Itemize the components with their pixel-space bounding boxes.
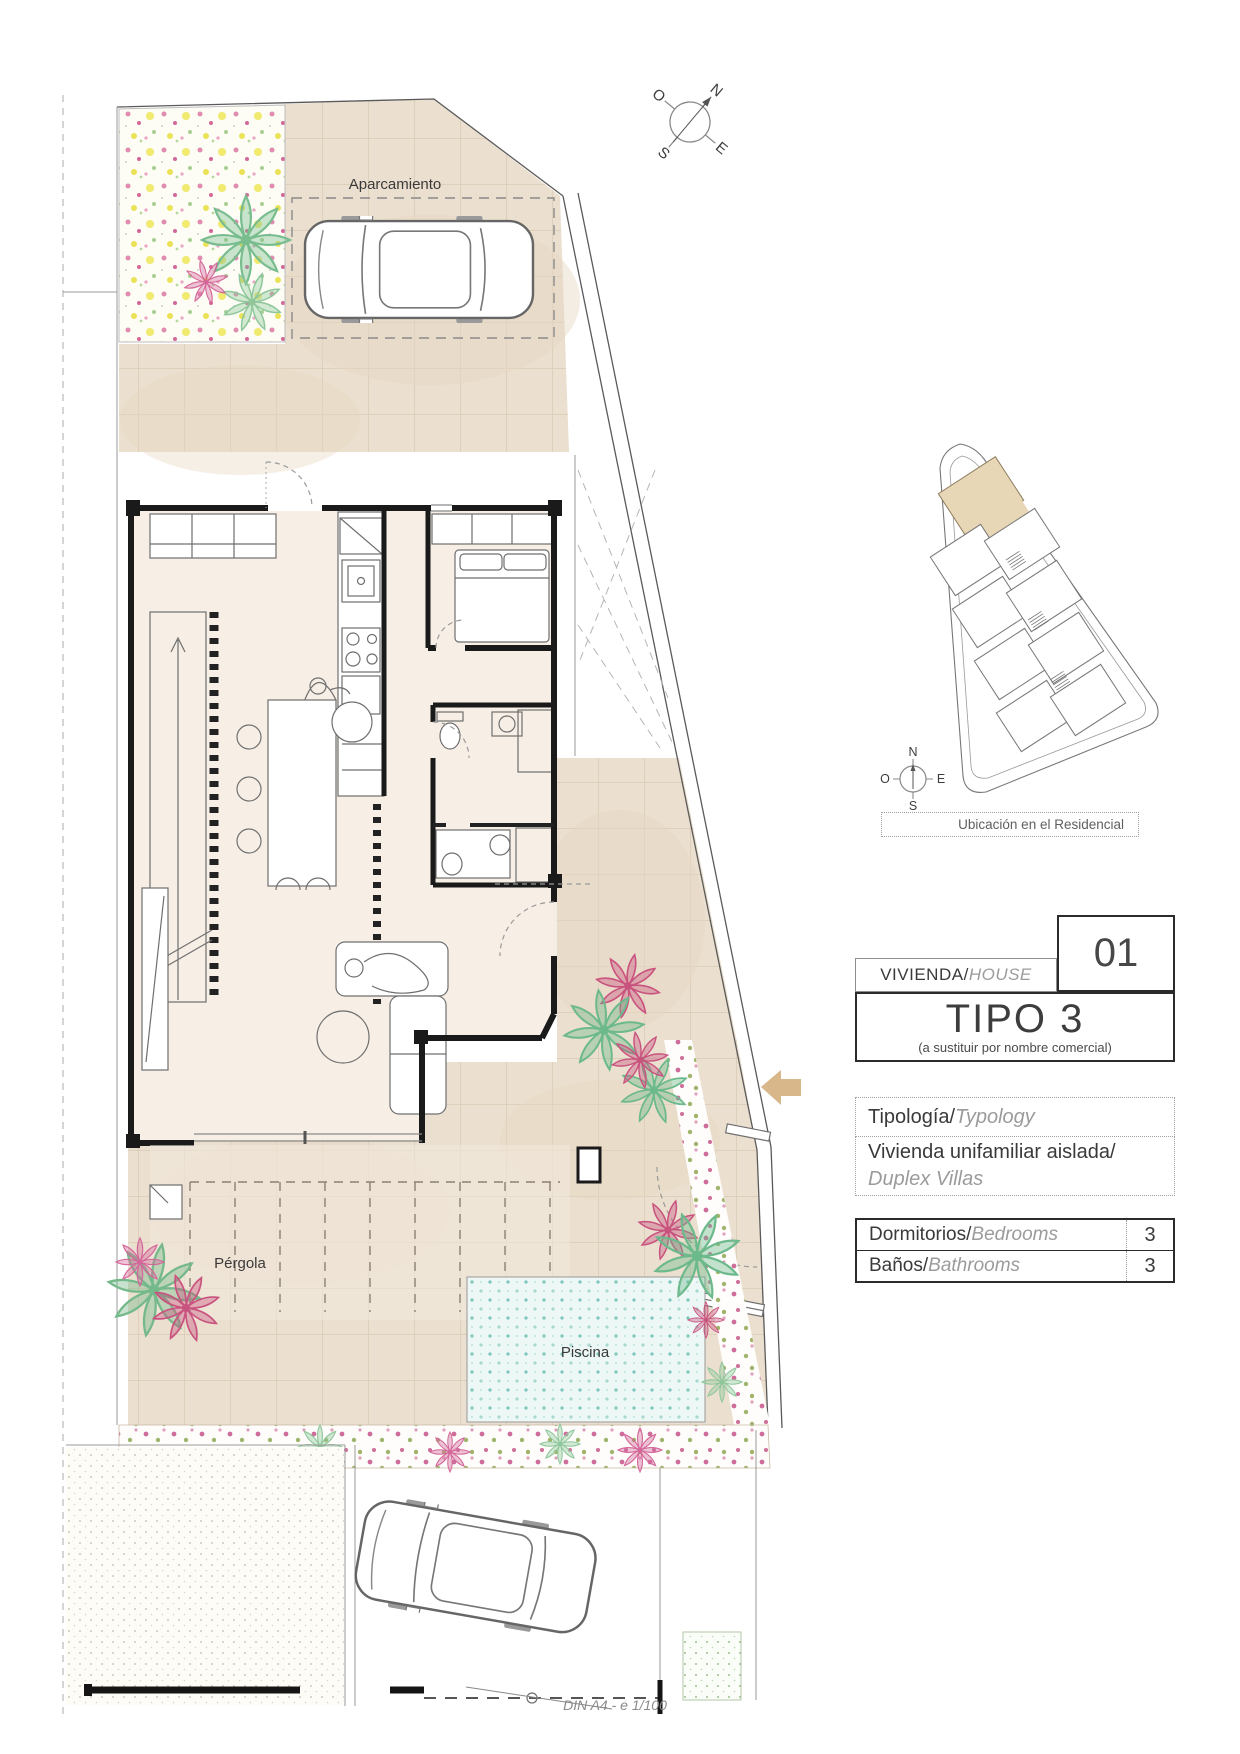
street-car-top-view bbox=[350, 1489, 600, 1644]
typology-label-es: Tipología/ bbox=[868, 1106, 955, 1129]
typology-value-es: Vivienda unifamiliar aislada/ bbox=[868, 1139, 1174, 1166]
floorplan-drawing: N O E S bbox=[0, 0, 1240, 1754]
typology-label-en: Typology bbox=[955, 1106, 1035, 1129]
map-compass-n: N bbox=[908, 745, 917, 759]
map-compass-s: S bbox=[909, 799, 917, 813]
plan-sheet: N O E S bbox=[0, 0, 1240, 1754]
bedrooms-label-es: Dormitorios/ bbox=[869, 1224, 971, 1246]
bedrooms-label: Dormitorios/Bedrooms bbox=[857, 1220, 1126, 1250]
spec-row-bedrooms: Dormitorios/Bedrooms 3 bbox=[857, 1220, 1173, 1250]
bathrooms-value: 3 bbox=[1126, 1251, 1173, 1281]
location-map-compass-icon: N O E S bbox=[880, 745, 945, 813]
bathrooms-label-en: Bathrooms bbox=[928, 1255, 1020, 1277]
house-label-es: VIVIENDA/ bbox=[880, 965, 969, 985]
type-title: TIPO 3 bbox=[946, 999, 1085, 1039]
specs-table: Dormitorios/Bedrooms 3 Baños/Bathrooms 3 bbox=[855, 1218, 1175, 1283]
location-map-caption: Ubicación en el Residencial bbox=[881, 812, 1139, 837]
car-top-view bbox=[305, 213, 533, 326]
street-area bbox=[66, 1430, 756, 1714]
spec-row-bathrooms: Baños/Bathrooms 3 bbox=[857, 1250, 1173, 1281]
house-label-en: HOUSE bbox=[969, 965, 1032, 985]
house-label-box: VIVIENDA/HOUSE bbox=[855, 958, 1057, 992]
kitchen-counter bbox=[338, 512, 384, 796]
bedrooms-value: 3 bbox=[1126, 1220, 1173, 1250]
compass-rose-icon: N O E S bbox=[622, 54, 757, 190]
pergola-label: Pérgola bbox=[180, 1255, 300, 1272]
typology-value-en: Duplex Villas bbox=[868, 1166, 1174, 1193]
bedrooms-label-en: Bedrooms bbox=[971, 1224, 1058, 1246]
house bbox=[126, 462, 593, 1148]
media-console bbox=[142, 888, 168, 1070]
compass-o: O bbox=[649, 85, 669, 106]
entry-arrow-icon bbox=[761, 1070, 801, 1105]
location-map: N O E S bbox=[880, 444, 1158, 813]
garden-area bbox=[119, 105, 290, 342]
compass-n: N bbox=[707, 81, 726, 101]
location-map-caption-text: Ubicación en el Residencial bbox=[958, 817, 1124, 832]
pool-label: Piscina bbox=[520, 1344, 650, 1361]
scale-note: DIN A4 - e 1/100 bbox=[465, 1697, 765, 1713]
typology-value-box: Vivienda unifamiliar aislada/ Duplex Vil… bbox=[855, 1136, 1175, 1196]
typology-label-box: Tipología/Typology bbox=[855, 1097, 1175, 1137]
bathrooms-label: Baños/Bathrooms bbox=[857, 1251, 1126, 1281]
unit-number-box: 01 bbox=[1057, 915, 1175, 992]
compass-e: E bbox=[712, 139, 731, 158]
type-note: (a sustituir por nombre comercial) bbox=[918, 1040, 1112, 1055]
type-box: TIPO 3 (a sustituir por nombre comercial… bbox=[855, 992, 1175, 1062]
hall-bench bbox=[150, 514, 276, 558]
map-compass-o: O bbox=[880, 772, 890, 786]
map-compass-e: E bbox=[937, 772, 945, 786]
unit-number: 01 bbox=[1094, 931, 1139, 976]
parking-label: Aparcamiento bbox=[320, 176, 470, 193]
compass-s: S bbox=[654, 144, 673, 163]
bathrooms-label-es: Baños/ bbox=[869, 1255, 928, 1277]
